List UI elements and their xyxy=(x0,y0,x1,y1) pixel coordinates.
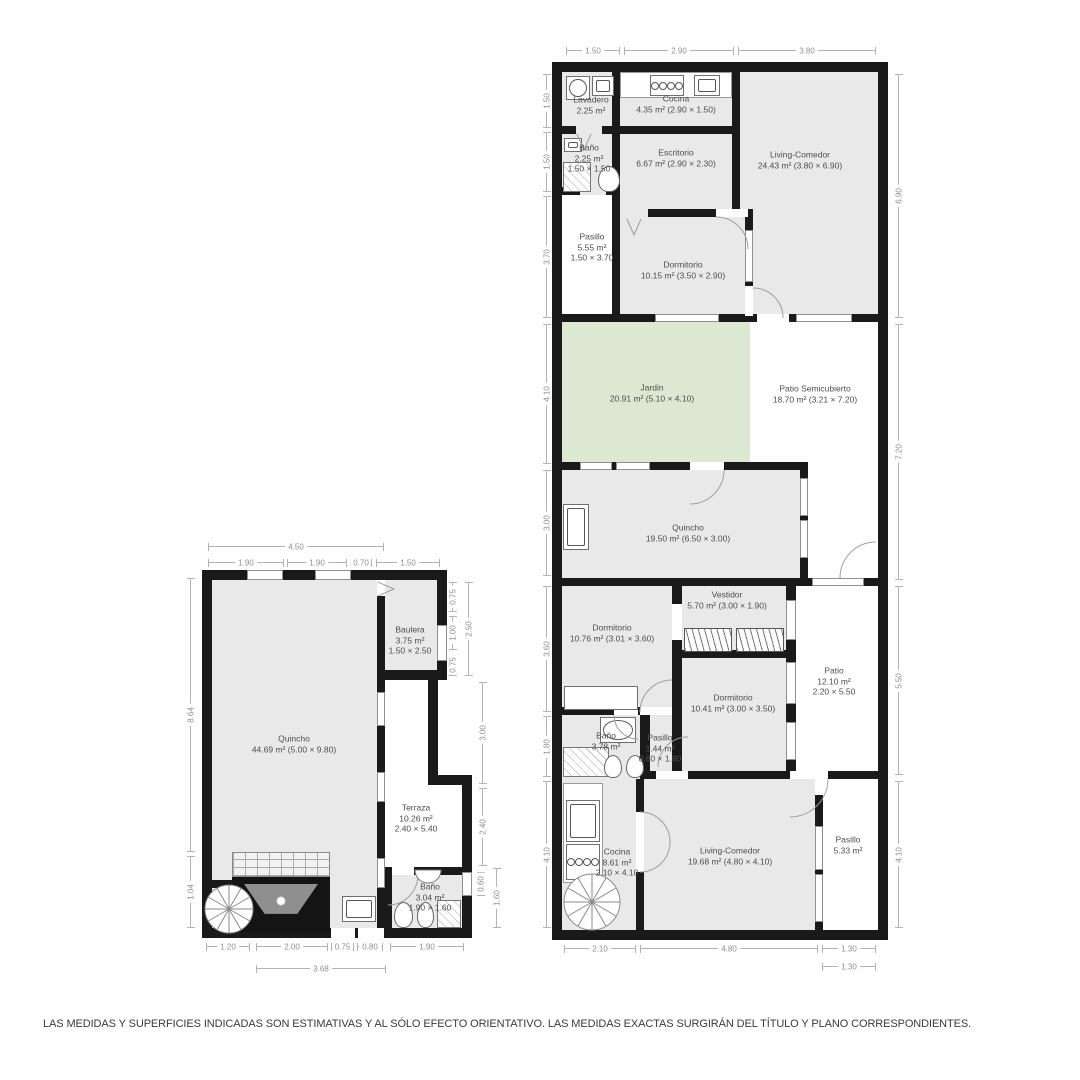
room-label-patio-semicubierto: Patio Semicubierto18.70 m² (3.21 × 7.20) xyxy=(773,384,857,405)
dimension: 3.00 xyxy=(482,682,483,784)
room-label-quincho-main: Quincho19.50 m² (6.50 × 3.00) xyxy=(646,523,730,544)
wall xyxy=(355,928,358,938)
wall xyxy=(377,596,385,680)
dimension: 3.60 xyxy=(546,586,547,712)
wall xyxy=(552,930,888,940)
dimension: 5.50 xyxy=(898,586,899,775)
room-label-dormitorio2: Dormitorio10.76 m² (3.01 × 3.60) xyxy=(570,623,654,644)
room-label-living-top: Living-Comedor24.43 m² (3.80 × 6.90) xyxy=(758,150,842,171)
door-opening xyxy=(716,209,748,217)
dimension: 1.50 xyxy=(376,562,440,563)
wall xyxy=(384,867,392,938)
door-opening xyxy=(745,286,753,316)
wall xyxy=(414,867,462,875)
sink-fixture xyxy=(342,896,376,922)
disclaimer-text: LAS MEDIDAS Y SUPERFICIES INDICADAS SON … xyxy=(43,1018,971,1030)
window xyxy=(377,858,385,888)
dimension: 1.20 xyxy=(206,946,250,947)
door-opening xyxy=(790,771,828,779)
door-opening xyxy=(672,604,682,640)
toilet-fixture xyxy=(604,755,622,778)
bench-fixture xyxy=(232,852,330,877)
dimension: 1.50 xyxy=(546,74,547,128)
dimension: 1.50 xyxy=(566,50,620,51)
dimension: 1.00 xyxy=(452,616,453,650)
room-label-cocina-bottom: Cocina8.61 m²2.10 × 4.10 xyxy=(596,846,639,878)
door-opening xyxy=(656,771,688,779)
dimension: 4.80 xyxy=(640,948,818,949)
wall xyxy=(878,62,888,940)
window xyxy=(377,692,385,726)
door-opening xyxy=(690,462,724,470)
window xyxy=(247,570,283,580)
dimension: 1.50 xyxy=(546,132,547,192)
window xyxy=(462,872,472,896)
window xyxy=(616,462,650,470)
dimension: 8.64 xyxy=(190,578,191,852)
window xyxy=(815,874,823,922)
dimension: 0.75 xyxy=(452,582,453,612)
dimension: 0.70 xyxy=(350,562,372,563)
wardrobe-fixture xyxy=(736,628,784,652)
window xyxy=(377,772,385,802)
window xyxy=(745,230,753,282)
window xyxy=(315,570,351,580)
wall xyxy=(377,670,447,680)
window xyxy=(580,462,612,470)
shower-fixture xyxy=(563,747,609,777)
room-dormitorio3 xyxy=(682,658,786,771)
wall xyxy=(602,126,612,134)
sink-fixture xyxy=(592,76,614,96)
room-escritorio xyxy=(620,134,732,217)
wall xyxy=(612,72,620,318)
furniture xyxy=(564,686,638,710)
dimension: 7.20 xyxy=(898,324,899,580)
room-label-annex-terraza: Terraza10.26 m²2.40 × 5.40 xyxy=(395,802,438,834)
window xyxy=(655,314,719,322)
dimension: 0.75 xyxy=(331,946,354,947)
dimension: 4.50 xyxy=(208,546,384,547)
dimension: 2.50 xyxy=(468,582,469,676)
room-label-escritorio: Escritorio6.67 m² (2.90 × 2.30) xyxy=(636,148,716,169)
dimension: 3.00 xyxy=(546,470,547,576)
dimension: 2.90 xyxy=(624,50,734,51)
room-label-pasillo-mid: Pasillo1.44 m²0.80 × 1.80 xyxy=(639,732,682,764)
room-label-annex-bano: Baño3.04 m²1.90 × 1.60 xyxy=(409,881,452,913)
dimension: 1.90 xyxy=(390,946,464,947)
dimension: 1.04 xyxy=(190,856,191,928)
window xyxy=(800,478,808,516)
wall xyxy=(552,62,888,72)
window xyxy=(796,314,852,322)
wall xyxy=(384,928,472,938)
window xyxy=(786,722,796,760)
room-label-dormitorio1: Dormitorio10.15 m² (3.50 × 2.90) xyxy=(641,260,725,281)
window xyxy=(815,826,823,870)
wall xyxy=(620,126,740,134)
room-label-patio: Patio12.10 m²2.20 × 5.50 xyxy=(813,665,856,697)
room-label-cocina-top: Cocina4.35 m² (2.90 × 1.50) xyxy=(636,94,716,115)
dimension: 6.90 xyxy=(898,74,899,318)
room-annex-terraza xyxy=(385,680,428,785)
room-label-annex-baulera: Baulera3.75 m²1.50 × 2.50 xyxy=(389,624,432,656)
room-label-bano-mid: Baño3.78 m² xyxy=(592,731,621,752)
wall xyxy=(732,72,740,217)
dimension: 4.10 xyxy=(546,781,547,928)
sink-fixture xyxy=(566,800,600,842)
dimension: 1.90 xyxy=(287,562,347,563)
door-swing-overlay xyxy=(0,0,1080,1080)
floorplan-canvas: Lavadero2.25 m² Cocina4.35 m² (2.90 × 1.… xyxy=(0,0,1080,1080)
fireplace-fixture xyxy=(563,504,589,550)
dimension: 1.30 xyxy=(822,966,876,967)
dimension: 0.60 xyxy=(480,872,481,896)
room-label-living-bottom: Living-Comedor19.68 m² (4.80 × 4.10) xyxy=(688,846,772,867)
window xyxy=(786,662,796,704)
room-label-pasillo-bottom: Pasillo5.33 m² xyxy=(834,835,863,856)
room-label-dormitorio3: Dormitorio10.41 m² (3.00 × 3.50) xyxy=(691,693,775,714)
dimension: 1.60 xyxy=(496,868,497,928)
window xyxy=(437,625,447,661)
wardrobe-fixture xyxy=(684,628,732,652)
dimension: 2.10 xyxy=(564,948,636,949)
dimension: 4.10 xyxy=(898,781,899,928)
wall xyxy=(462,775,472,938)
window xyxy=(786,600,796,640)
room-label-annex-quincho: Quincho44.69 m² (5.00 × 9.80) xyxy=(252,734,336,755)
dimension: 2.00 xyxy=(256,946,328,947)
wall xyxy=(748,209,753,217)
room-label-lavadero: Lavadero2.25 m² xyxy=(573,95,608,116)
dimension: 1.90 xyxy=(208,562,284,563)
window xyxy=(800,520,808,558)
dimension: 4.10 xyxy=(546,324,547,464)
dimension: 1.80 xyxy=(546,716,547,777)
dimension: 1.30 xyxy=(822,948,876,949)
room-label-jardin: Jardin20.91 m² (5.10 × 4.10) xyxy=(610,383,694,404)
room-label-vestidor: Vestidor5.70 m² (3.00 × 1.90) xyxy=(687,590,767,611)
dimension: 3.68 xyxy=(256,968,386,969)
room-living-top xyxy=(732,72,878,318)
dimension: 3.80 xyxy=(738,50,876,51)
wall xyxy=(552,126,576,134)
door-opening xyxy=(757,314,789,322)
dimension: 2.40 xyxy=(482,788,483,866)
wall xyxy=(428,680,438,780)
dimension: 3.70 xyxy=(546,196,547,318)
door-opening xyxy=(640,707,672,715)
dimension: 0.75 xyxy=(452,654,453,676)
grill-fixture xyxy=(232,877,330,932)
room-label-pasillo-top: Pasillo5.55 m²1.50 × 3.70 xyxy=(571,231,614,263)
window xyxy=(812,578,864,586)
wall xyxy=(648,209,716,217)
dimension: 0.80 xyxy=(357,946,383,947)
room-label-bano-top: Baño2.25 m²1.50 × 1.50 xyxy=(568,142,611,174)
